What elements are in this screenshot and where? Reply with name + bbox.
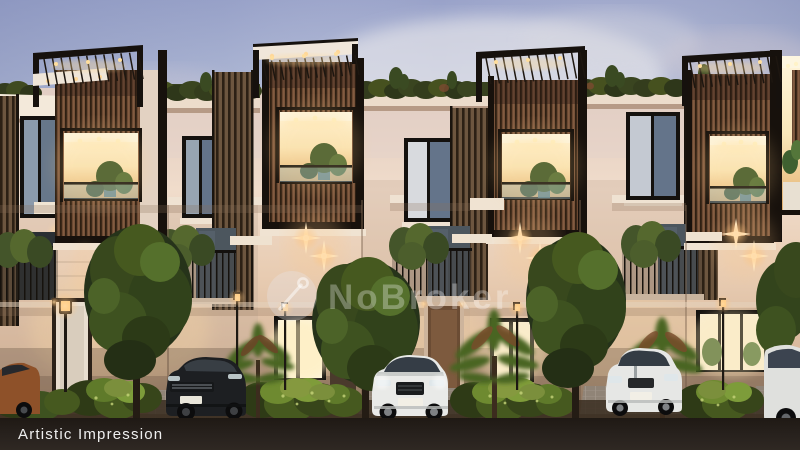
svg-text:NoBroker: NoBroker <box>328 278 511 317</box>
svg-text:Artistic Impression: Artistic Impression <box>18 426 163 443</box>
